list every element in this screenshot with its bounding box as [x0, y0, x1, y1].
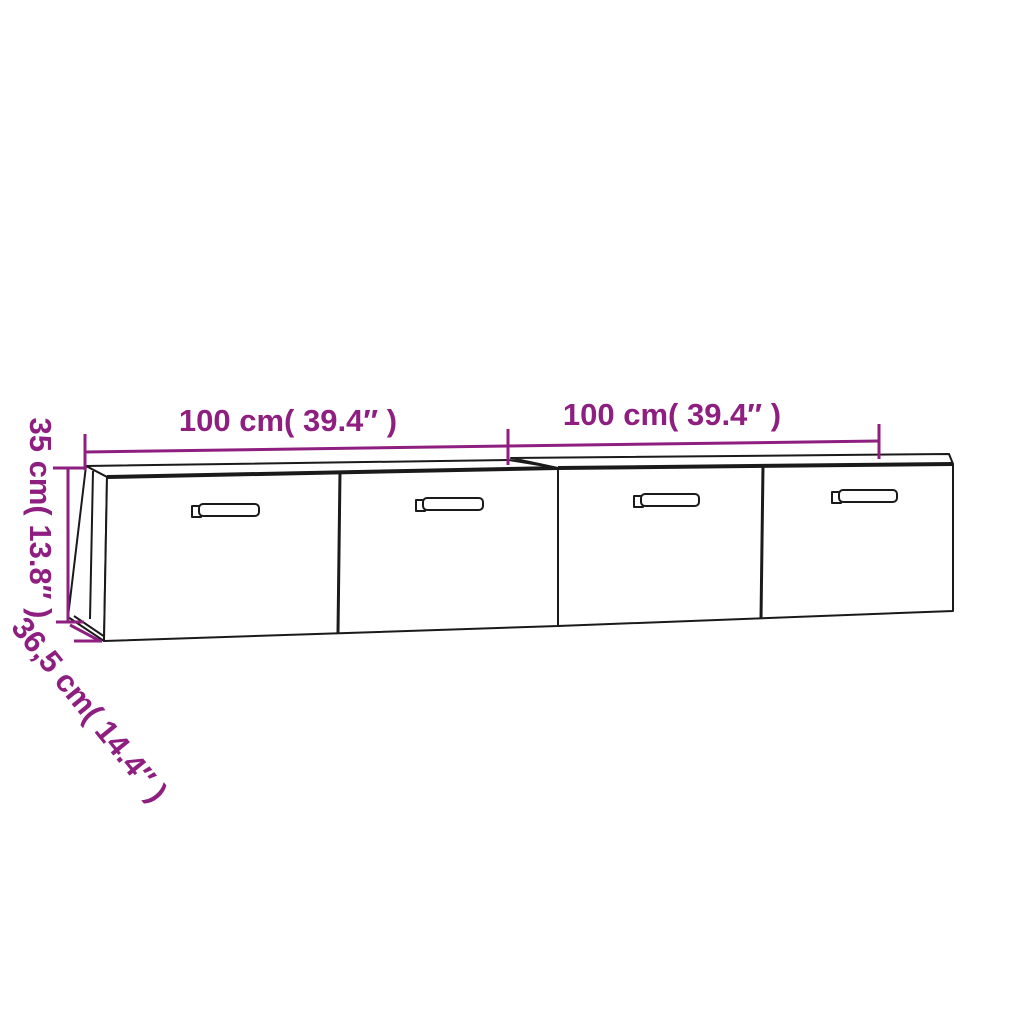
width-label-right: 100 cm( 39.4″ )	[563, 397, 781, 432]
handle-bar	[839, 490, 897, 502]
dimension-line	[85, 446, 508, 452]
handle-bar	[641, 494, 699, 506]
dimension-line	[508, 441, 879, 446]
cabinet-left-front-face	[104, 468, 558, 641]
door-handle	[416, 498, 483, 511]
cabinet-left	[68, 460, 558, 641]
wall-cabinet-dimension-diagram: 100 cm( 39.4″ ) 100 cm( 39.4″ ) 35 cm( 1…	[0, 0, 1024, 1024]
height-label: 35 cm( 13.8″ )	[23, 418, 58, 619]
handle-bar	[199, 504, 259, 516]
product-image-canvas: 100 cm( 39.4″ ) 100 cm( 39.4″ ) 35 cm( 1…	[0, 0, 1024, 1024]
handle-bar	[423, 498, 483, 510]
cabinet-right-front-face	[558, 464, 953, 626]
width-label-left: 100 cm( 39.4″ )	[179, 403, 397, 438]
cabinet-right-door-divider	[761, 466, 763, 619]
cabinet-right	[511, 454, 953, 626]
cabinet-left-door-divider	[338, 471, 340, 633]
cabinet-left-side-panel	[68, 466, 107, 641]
door-handle	[634, 494, 699, 507]
door-handle	[832, 490, 897, 503]
cabinet-drawing	[68, 454, 953, 641]
door-handle	[192, 504, 259, 517]
